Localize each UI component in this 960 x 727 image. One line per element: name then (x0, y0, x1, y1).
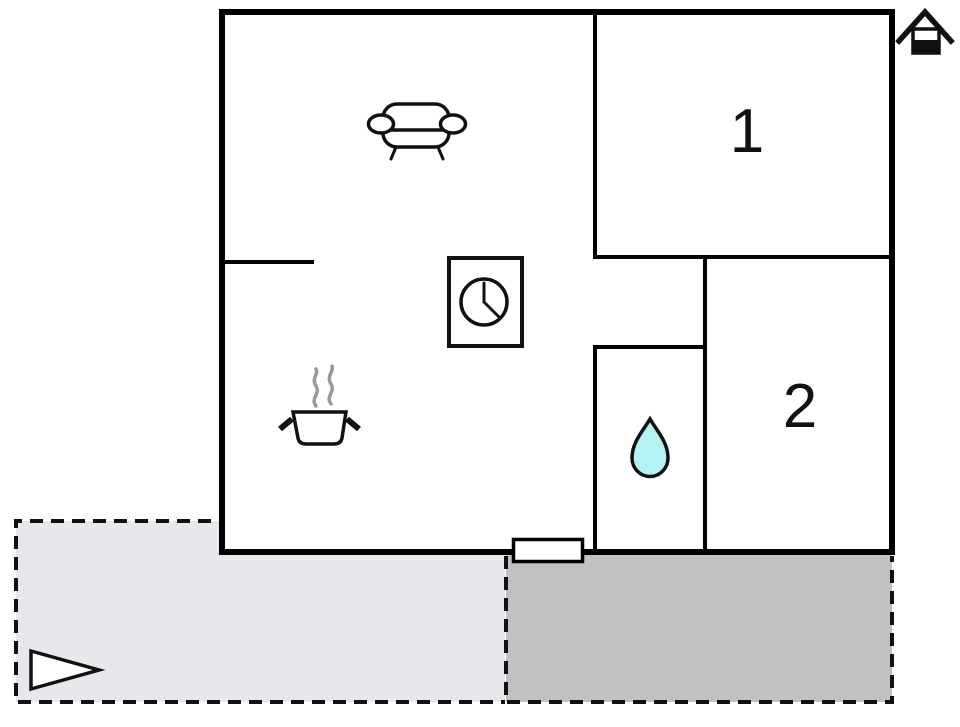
room-1-label: 1 (730, 97, 764, 166)
floor-plan-canvas: 1 2 (0, 0, 960, 727)
building-outline (222, 12, 892, 552)
floor-plan: 1 2 (0, 0, 960, 727)
entrance-door (514, 540, 583, 562)
house-body-dark-band (912, 40, 940, 53)
terrace-area (506, 555, 892, 702)
sofa-armrest-left (369, 115, 394, 133)
terrace-fill (506, 555, 892, 702)
clock-icon (449, 258, 522, 346)
pot-body (293, 412, 346, 444)
house-icon (899, 12, 951, 53)
room-2-label: 2 (783, 372, 817, 441)
sofa-armrest-right (441, 115, 466, 133)
